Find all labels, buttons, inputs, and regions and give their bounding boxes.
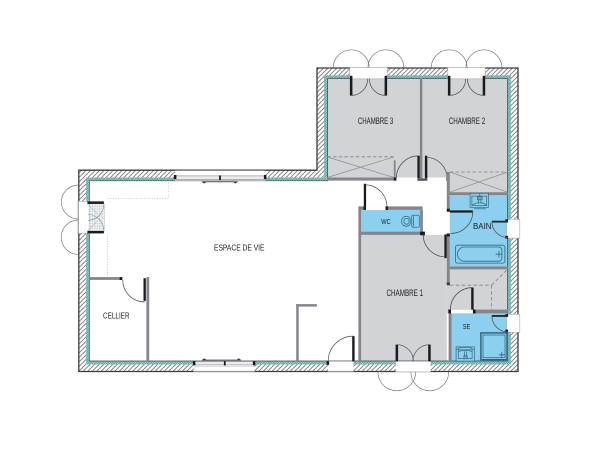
- svg-text:ESPACE DE VIE: ESPACE DE VIE: [214, 243, 265, 252]
- svg-text:BAIN: BAIN: [473, 221, 492, 231]
- svg-text:CHAMBRE 3: CHAMBRE 3: [358, 116, 393, 127]
- svg-text:SE: SE: [463, 322, 471, 331]
- svg-text:WC: WC: [381, 217, 391, 226]
- svg-text:CHAMBRE 1: CHAMBRE 1: [387, 288, 424, 299]
- svg-text:CELLIER: CELLIER: [103, 312, 130, 321]
- svg-text:CHAMBRE 2: CHAMBRE 2: [449, 116, 486, 127]
